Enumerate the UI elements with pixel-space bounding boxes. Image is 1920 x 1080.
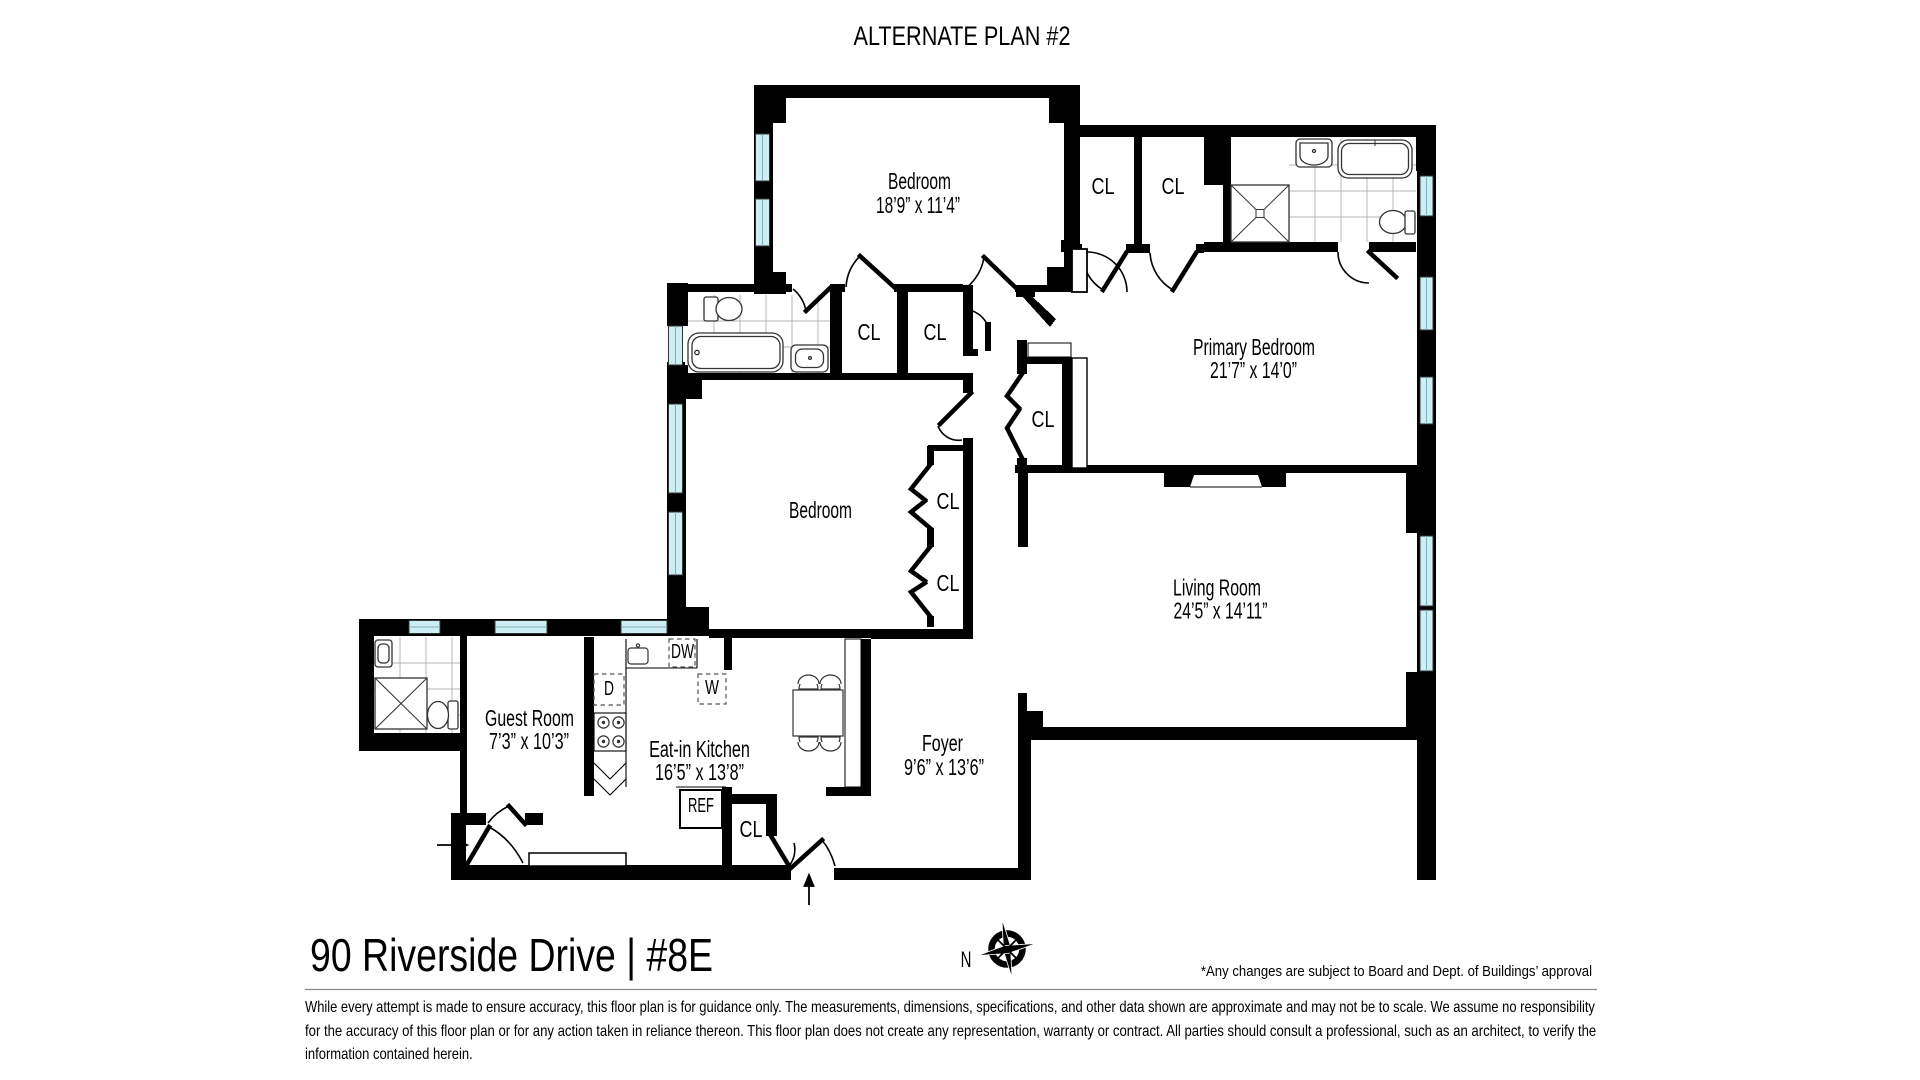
svg-text:N: N [961,947,972,972]
svg-text:9’6” x 13’6”: 9’6” x 13’6” [904,755,984,780]
svg-text:Bedroom: Bedroom [789,498,852,524]
svg-text:CL: CL [1092,174,1115,200]
svg-text:W: W [705,676,719,699]
svg-text:Primary Bedroom: Primary Bedroom [1193,335,1315,361]
svg-text:CL: CL [937,571,960,597]
svg-text:16’5” x 13’8”: 16’5” x 13’8” [655,760,744,785]
svg-text:*Any changes are subject to Bo: *Any changes are subject to Board and De… [1201,963,1592,980]
svg-text:for the accuracy of this floor: for the accuracy of this floor plan or f… [305,1023,1596,1040]
svg-text:DW: DW [671,639,695,662]
svg-text:information contained herein.: information contained herein. [305,1046,473,1063]
svg-text:Guest Room: Guest Room [485,706,574,732]
svg-text:ALTERNATE PLAN #2: ALTERNATE PLAN #2 [854,22,1071,52]
svg-text:Eat-in Kitchen: Eat-in Kitchen [649,737,750,762]
svg-text:CL: CL [937,489,960,515]
svg-text:CL: CL [858,320,881,346]
svg-text:Foyer: Foyer [922,731,963,757]
svg-text:D: D [604,676,614,699]
svg-text:CL: CL [1162,174,1185,200]
svg-text:CL: CL [740,817,763,843]
svg-text:7’3” x 10’3”: 7’3” x 10’3” [489,729,569,754]
svg-text:CL: CL [1032,407,1055,433]
svg-text:90 Riverside Drive | #8E: 90 Riverside Drive | #8E [310,929,713,981]
svg-text:18’9” x 11’4”: 18’9” x 11’4” [876,193,960,219]
svg-text:24’5” x 14’11”: 24’5” x 14’11” [1174,599,1268,625]
svg-text:Living Room: Living Room [1173,576,1261,602]
svg-text:REF: REF [688,794,714,817]
svg-text:CL: CL [924,320,947,346]
svg-text:21’7” x 14’0”: 21’7” x 14’0” [1210,358,1297,384]
svg-text:Bedroom: Bedroom [888,169,951,195]
svg-text:While every attempt is made to: While every attempt is made to ensure ac… [305,999,1596,1016]
